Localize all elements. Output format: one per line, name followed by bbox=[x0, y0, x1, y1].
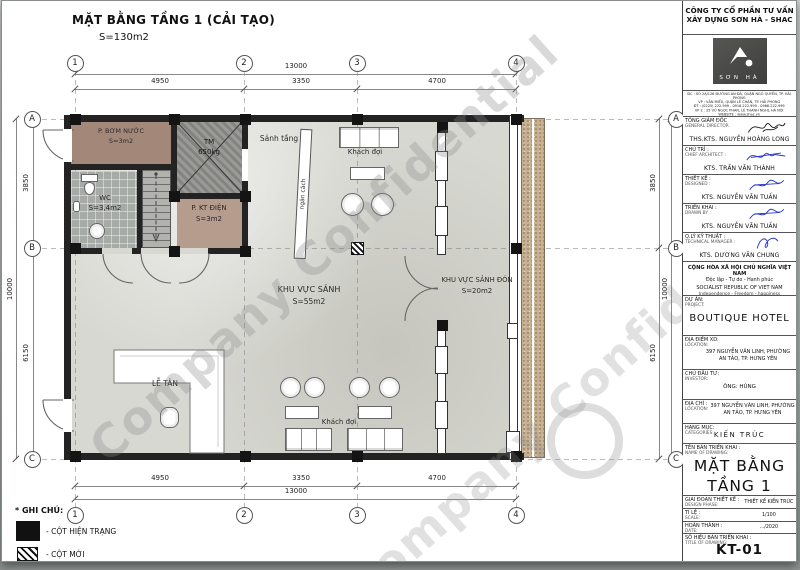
plan-title: MẶT BẰNG TẦNG 1 (CẢI TẠO) bbox=[72, 13, 275, 27]
investor-value: ÔNG: HÙNG bbox=[683, 384, 796, 390]
dim-top-1: 4950 bbox=[151, 77, 169, 85]
wall-top bbox=[64, 115, 524, 122]
armchair bbox=[304, 377, 325, 398]
waiting-area-bottom-label: Khách đợi bbox=[322, 418, 357, 426]
signer-name: KTS. NGUYỄN VĂN TUẤN bbox=[683, 194, 796, 201]
window-panel bbox=[507, 323, 518, 339]
company-logo-section: SƠN HÀ bbox=[683, 35, 796, 91]
republic-line3: SOCIALIST REPUBLIC OF VIET NAM bbox=[683, 285, 796, 291]
armchair bbox=[379, 377, 400, 398]
reception-chair bbox=[160, 407, 179, 428]
signer-row-designed: THIẾT KẾ :DESIGNED : KTS. NGUYỄN VĂN TUẤ… bbox=[683, 175, 796, 204]
legend-heading: * GHI CHÚ: bbox=[15, 506, 63, 515]
dim-top-total: 13000 bbox=[285, 62, 307, 70]
column-existing bbox=[70, 243, 81, 254]
floor-lobby-label: Sảnh tầng bbox=[260, 134, 298, 143]
coffee-table bbox=[350, 167, 385, 180]
dim-line bbox=[33, 119, 34, 459]
site-value: 397 NGUYỄN VĂN LINH, PHƯỜNG AN TẢO, TP. … bbox=[683, 349, 796, 363]
column-existing bbox=[70, 114, 81, 125]
wall-panel bbox=[435, 401, 448, 429]
pump-room-label: P. BƠM NƯỚC bbox=[98, 127, 144, 135]
dim-right-2: 6150 bbox=[649, 344, 657, 362]
dim-left-1: 3850 bbox=[22, 174, 30, 192]
signer-name: KTS. DƯƠNG VĂN CHUNG bbox=[683, 252, 796, 259]
existing-side-wall bbox=[521, 118, 545, 458]
welcome-lobby-area: S=20m2 bbox=[462, 287, 493, 295]
drawing-name-line2: TẦNG 1 bbox=[683, 477, 796, 495]
drawing-name-label-en: NAME OF DRAWING: bbox=[685, 451, 740, 457]
dim-line bbox=[75, 74, 516, 75]
signer-row-chief-architect: CHỦ TRÌ :CHIEF ARCHITECT : KTS. TRẦN VĂN… bbox=[683, 146, 796, 175]
lobby-label: KHU VỰC SẢNH bbox=[278, 285, 341, 294]
armchair bbox=[371, 193, 394, 216]
project-section: DỰ ÁN:PROJECT: BOUTIQUE HOTEL bbox=[683, 296, 796, 336]
grid-bubble-2-bottom: 2 bbox=[236, 507, 253, 524]
signer-row-drawn-by: TRIỂN KHAI :DRAWN BY : KTS. NGUYỄN VĂN T… bbox=[683, 204, 796, 233]
company-name-line1: CÔNG TY CỔ PHẦN TƯ VẤN bbox=[683, 6, 796, 15]
reception-label: LỄ TÂN bbox=[152, 379, 178, 388]
door-opening bbox=[102, 248, 132, 254]
dim-line bbox=[671, 119, 672, 459]
company-header: CÔNG TY CỔ PHẦN TƯ VẤN XÂY DỰNG SƠN HÀ -… bbox=[683, 1, 796, 35]
title-block: CÔNG TY CỔ PHẦN TƯ VẤN XÂY DỰNG SƠN HÀ -… bbox=[682, 1, 796, 561]
grid-bubble-c-left: C bbox=[24, 451, 41, 468]
wall-interior-lower bbox=[437, 322, 446, 454]
door-opening bbox=[141, 248, 170, 254]
column-existing bbox=[511, 243, 522, 254]
wall-right-window bbox=[509, 115, 518, 460]
signer-role: TỔNG GIÁM ĐỐC bbox=[685, 118, 727, 124]
wc-label: WC bbox=[99, 194, 111, 202]
phase-value: THIẾT KẾ KIẾN TRÚC bbox=[742, 496, 796, 508]
pump-room-area: S=3m2 bbox=[109, 137, 133, 145]
company-name-line2: XÂY DỰNG SƠN HÀ - SHAC bbox=[683, 15, 796, 24]
phase-label-en: DESIGN PHASE: bbox=[685, 503, 739, 509]
waiting-area-top-label: Khách đợi bbox=[348, 148, 383, 156]
column-existing bbox=[70, 451, 81, 462]
column-existing bbox=[240, 246, 251, 257]
project-name: BOUTIQUE HOTEL bbox=[683, 313, 796, 324]
grid-bubble-2-top: 2 bbox=[236, 55, 253, 72]
column-existing bbox=[240, 114, 251, 125]
site-label-en: LOCATION: bbox=[685, 343, 719, 349]
wc-sink bbox=[89, 223, 105, 239]
column-existing bbox=[437, 320, 448, 331]
scale-label: TỈ LỆ : bbox=[685, 510, 700, 516]
investor-section: CHỦ ĐẦU TƯ:INVESTOR: ÔNG: HÙNG bbox=[683, 370, 796, 400]
wall-elevator-south bbox=[171, 193, 248, 199]
scale-value: 1/100 bbox=[742, 509, 796, 521]
investor-label: CHỦ ĐẦU TƯ: bbox=[685, 371, 719, 377]
phase-row: GIAI ĐOẠN THIẾT KẾ :DESIGN PHASE: THIẾT … bbox=[683, 496, 796, 509]
company-address: ĐC : SỐ 2A/126 ĐƯỜNG AN ĐÀ, QUẬN NGÔ QUY… bbox=[683, 91, 796, 117]
wall-wc-stairs bbox=[137, 169, 142, 254]
dim-bottom-total: 13000 bbox=[285, 487, 307, 495]
address-label-en: LOCATION: bbox=[685, 407, 708, 413]
column-existing bbox=[169, 246, 180, 257]
project-label-en: PROJECT: bbox=[685, 303, 705, 309]
phase-label: GIAI ĐOẠN THIẾT KẾ : bbox=[685, 497, 739, 503]
dim-top-2: 3350 bbox=[292, 77, 310, 85]
column-existing bbox=[169, 114, 180, 125]
column-existing bbox=[511, 451, 522, 462]
investor-label-en: INVESTOR: bbox=[685, 377, 719, 383]
grid-bubble-3-top: 3 bbox=[349, 55, 366, 72]
republic-heading: CỘNG HÒA XÃ HỘI CHỦ NGHĨA VIỆT NAM Độc l… bbox=[683, 262, 796, 296]
scale-label-en: SCALE: bbox=[685, 516, 700, 522]
legend-new-column-label: - CỘT MỚI bbox=[46, 550, 85, 559]
column-existing bbox=[352, 451, 363, 462]
floor-plan-area: MẶT BẰNG TẦNG 1 (CẢI TẠO) S=130m2 4950 3… bbox=[2, 1, 683, 561]
grid-bubble-b-left: B bbox=[24, 240, 41, 257]
armchair bbox=[280, 377, 301, 398]
elevator-load: 650kg bbox=[198, 148, 220, 156]
watermark-circle bbox=[547, 403, 623, 479]
armchair bbox=[341, 193, 364, 216]
dim-top-3: 4700 bbox=[428, 77, 446, 85]
republic-line2: Độc lập - Tự do - Hạnh phúc bbox=[683, 278, 796, 283]
dim-line bbox=[659, 119, 660, 459]
signer-role-en: DRAWN BY : bbox=[685, 211, 717, 217]
address-line: ĐC : SỐ 2A/126 ĐƯỜNG AN ĐÀ, QUẬN NGÔ QUY… bbox=[683, 92, 796, 100]
grid-bubble-4-top: 4 bbox=[508, 55, 525, 72]
dim-bottom-1: 4950 bbox=[151, 474, 169, 482]
partition-label: ngăn cách bbox=[299, 178, 308, 209]
column-existing bbox=[240, 191, 251, 202]
signer-name: KTS. NGUYỄN VĂN TUẤN bbox=[683, 223, 796, 230]
category-section: HẠNG MỤC:CATEGORIES: KIẾN TRÚC bbox=[683, 424, 796, 444]
toilet-tank bbox=[81, 174, 98, 182]
electrical-room-label: P. KT ĐIỆN bbox=[191, 204, 226, 212]
column-existing bbox=[352, 114, 363, 125]
drawing-number-section: SỐ HIỆU BẢN TRIỂN KHAI :TITLE OF DRAWING… bbox=[683, 534, 796, 561]
welcome-lobby-label: KHU VỰC SẢNH ĐÓN bbox=[441, 276, 512, 284]
drawing-number-label-en: TITLE OF DRAWING: bbox=[685, 541, 751, 547]
grid-bubble-b-right: B bbox=[668, 240, 684, 257]
wall-panel bbox=[435, 346, 448, 374]
sofa bbox=[347, 428, 403, 451]
signer-role-en: TECHNICAL MANAGER : bbox=[685, 240, 735, 246]
sofa bbox=[285, 428, 332, 451]
signer-role: Q.LÝ KỸ THUẬT : bbox=[685, 234, 725, 240]
signature bbox=[740, 177, 792, 193]
dim-bottom-3: 4700 bbox=[428, 474, 446, 482]
plan-area-value: S=130m2 bbox=[99, 32, 149, 43]
signature bbox=[740, 119, 792, 135]
republic-line1: CỘNG HÒA XÃ HỘI CHỦ NGHĨA VIỆT NAM bbox=[683, 265, 796, 277]
dim-right-1: 3850 bbox=[649, 174, 657, 192]
signer-row-technical-manager: Q.LÝ KỸ THUẬT :TECHNICAL MANAGER : KTS. … bbox=[683, 233, 796, 262]
dim-bottom-2: 3350 bbox=[292, 474, 310, 482]
sofa bbox=[339, 127, 399, 148]
date-label: HOÀN THÀNH : bbox=[685, 523, 722, 529]
category-label: HẠNG MỤC: bbox=[685, 425, 715, 431]
elevator-label: TM bbox=[204, 138, 214, 146]
wall-bottom bbox=[64, 453, 524, 460]
grid-bubble-c-right: C bbox=[668, 451, 684, 468]
coffee-table bbox=[285, 406, 319, 419]
wall-elevator-west bbox=[171, 115, 177, 199]
grid-bubble-a-right: A bbox=[668, 111, 684, 128]
dim-left-total: 10000 bbox=[6, 278, 14, 300]
signer-role-en: GENERAL DIRECTOR bbox=[685, 124, 729, 130]
wc-urinal bbox=[73, 201, 80, 212]
date-value: .../2020 bbox=[742, 522, 796, 533]
signature bbox=[740, 235, 792, 251]
signer-role-en: DESIGNED : bbox=[685, 182, 711, 188]
dim-left-2: 6150 bbox=[22, 344, 30, 362]
wall-panel bbox=[435, 151, 448, 181]
dim-line bbox=[16, 119, 17, 459]
dim-line bbox=[75, 499, 516, 500]
signature bbox=[740, 206, 792, 222]
legend-existing-column-label: - CỘT HIỆN TRẠNG bbox=[46, 527, 116, 536]
signature bbox=[740, 148, 792, 164]
grid-bubble-3-bottom: 3 bbox=[349, 507, 366, 524]
wall-pump-south bbox=[64, 164, 174, 170]
category-label-en: CATEGORIES: bbox=[685, 431, 715, 437]
scale-row: TỈ LỆ :SCALE: 1/100 bbox=[683, 509, 796, 522]
logo-text: SƠN HÀ bbox=[713, 75, 767, 81]
legend-new-column-swatch bbox=[17, 547, 38, 561]
wc-area: S=3,4m2 bbox=[89, 204, 122, 212]
signer-name: THS.KTS. NGUYỄN HOÀNG LONG bbox=[683, 136, 796, 143]
column-existing bbox=[240, 451, 251, 462]
elevator-shaft bbox=[177, 122, 242, 193]
dim-line bbox=[75, 89, 516, 90]
company-logo: SƠN HÀ bbox=[713, 38, 767, 84]
signer-row-general-director: TỔNG GIÁM ĐỐCGENERAL DIRECTOR THS.KTS. N… bbox=[683, 117, 796, 146]
drawing-number-label: SỐ HIỆU BẢN TRIỂN KHAI : bbox=[685, 535, 751, 541]
site-section: ĐỊA ĐIỂM XD:LOCATION: 397 NGUYỄN VĂN LIN… bbox=[683, 336, 796, 370]
wall-panel bbox=[435, 206, 448, 236]
address-section: ĐỊA CHỈ :LOCATION: 397 NGUYỄN VĂN LINH, … bbox=[683, 400, 796, 424]
grid-bubble-1-bottom: 1 bbox=[67, 507, 84, 524]
drawing-sheet: MẶT BẰNG TẦNG 1 (CẢI TẠO) S=130m2 4950 3… bbox=[1, 0, 797, 562]
dim-right-total: 10000 bbox=[661, 278, 669, 300]
door-opening bbox=[179, 248, 208, 254]
signer-name: KTS. TRẦN VĂN THÀNH bbox=[683, 165, 796, 172]
column-existing bbox=[437, 122, 448, 133]
door-opening bbox=[63, 129, 72, 162]
column-new bbox=[351, 242, 364, 255]
elevator-door-opening bbox=[242, 149, 248, 181]
date-row: HOÀN THÀNH :DATE: .../2020 bbox=[683, 522, 796, 534]
drawing-name-line1: MẶT BẰNG bbox=[683, 457, 796, 475]
drawing-name-label: TÊN BẢN TRIỂN KHAI : bbox=[685, 445, 740, 451]
electrical-room-area: S=3m2 bbox=[196, 215, 222, 223]
grid-bubble-a-left: A bbox=[24, 111, 41, 128]
signer-role: CHỦ TRÌ : bbox=[685, 147, 709, 153]
logo-glyph-icon bbox=[726, 43, 754, 69]
grid-bubble-1-top: 1 bbox=[67, 55, 84, 72]
coffee-table bbox=[358, 406, 392, 419]
signer-role-en: CHIEF ARCHITECT : bbox=[685, 153, 726, 159]
grid-bubble-4-bottom: 4 bbox=[508, 507, 525, 524]
address-label: ĐỊA CHỈ : bbox=[685, 401, 707, 407]
door-opening bbox=[63, 399, 72, 432]
project-label: DỰ ÁN: bbox=[685, 297, 704, 303]
signer-role: THIẾT KẾ : bbox=[685, 176, 711, 182]
drawing-name-section: TÊN BẢN TRIỂN KHAI :NAME OF DRAWING: MẶT… bbox=[683, 444, 796, 496]
staircase bbox=[142, 169, 171, 248]
signer-role: TRIỂN KHAI : bbox=[685, 205, 717, 211]
armchair bbox=[349, 377, 370, 398]
lobby-area: S=55m2 bbox=[293, 297, 326, 306]
legend-existing-column-swatch bbox=[16, 521, 40, 541]
column-existing bbox=[511, 114, 522, 125]
site-label: ĐỊA ĐIỂM XD: bbox=[685, 337, 719, 343]
column-existing bbox=[169, 191, 180, 202]
